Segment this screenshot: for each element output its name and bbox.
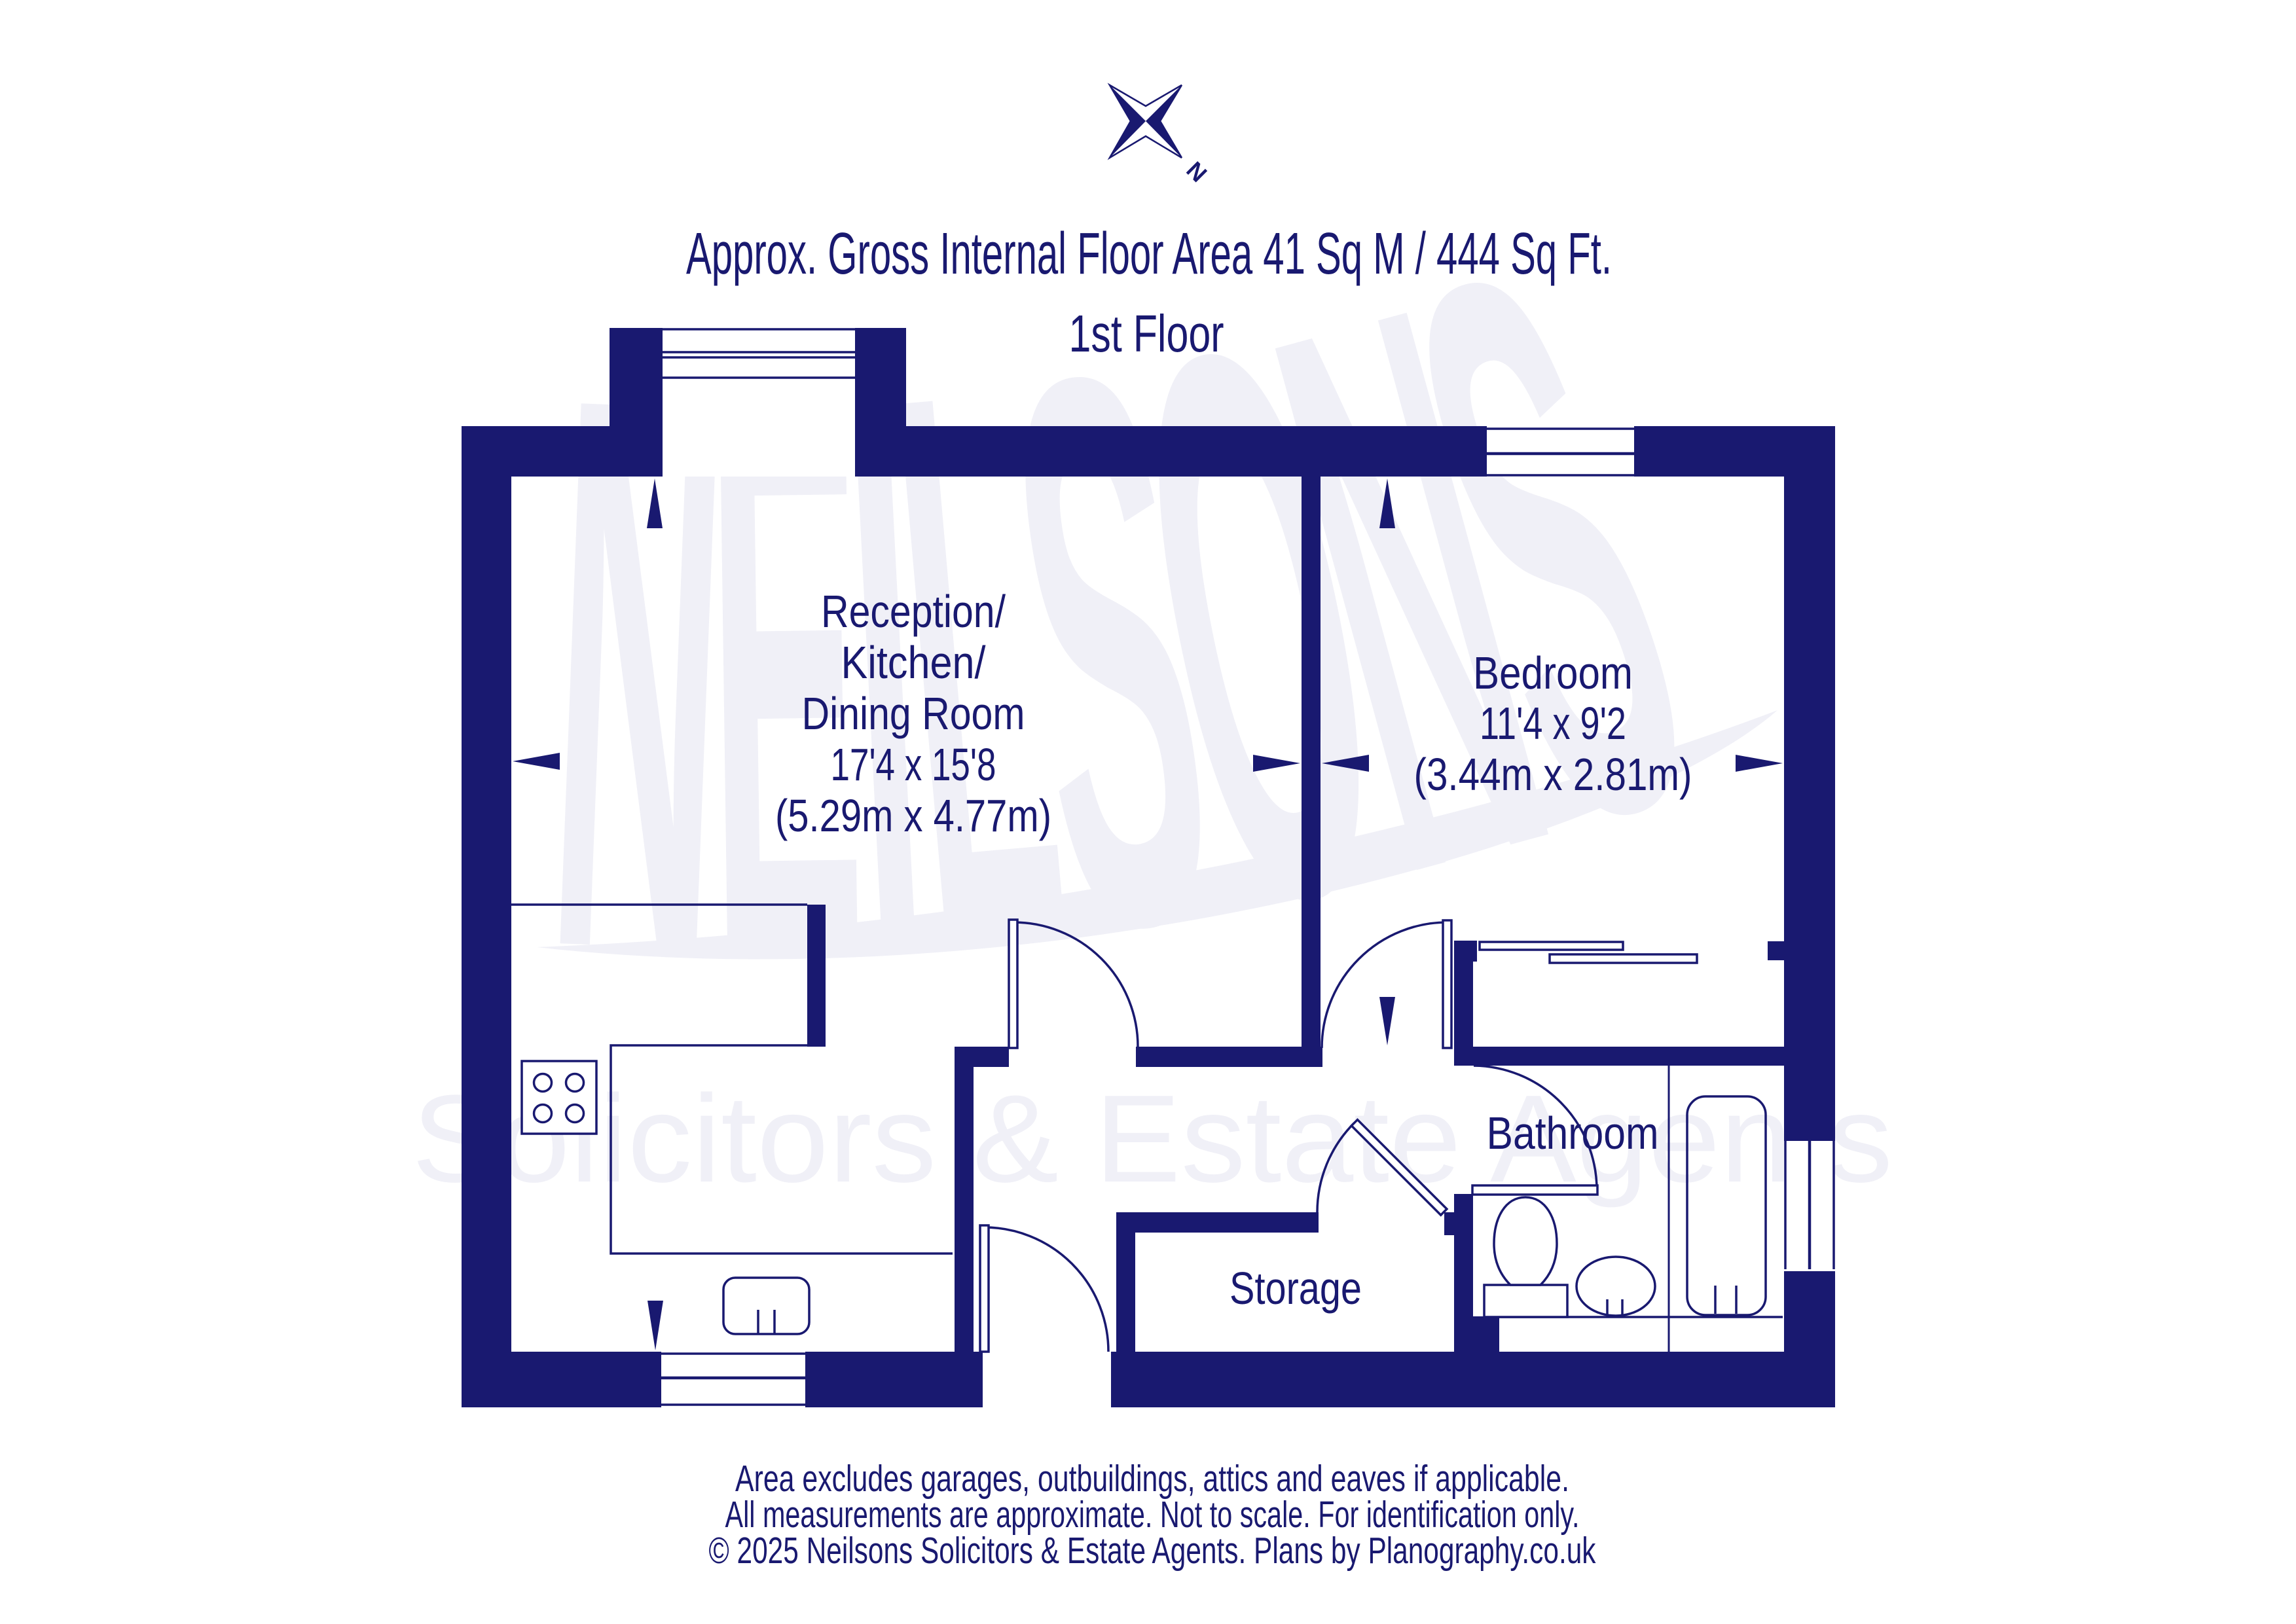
svg-text:Storage: Storage <box>1230 1263 1362 1314</box>
svg-text:© 2025 Neilsons Solicitors & E: © 2025 Neilsons Solicitors & Estate Agen… <box>709 1530 1596 1572</box>
svg-text:Approx. Gross Internal Floor A: Approx. Gross Internal Floor Area 41 Sq … <box>686 221 1612 287</box>
svg-text:(5.29m x 4.77m): (5.29m x 4.77m) <box>775 790 1051 841</box>
svg-text:Bathroom: Bathroom <box>1487 1108 1659 1159</box>
svg-text:17'4 x 15'8: 17'4 x 15'8 <box>831 739 996 790</box>
svg-text:Solicitors & Estate Agents: Solicitors & Estate Agents <box>412 1070 1893 1208</box>
svg-text:Bedroom: Bedroom <box>1473 647 1633 698</box>
svg-text:11'4 x 9'2: 11'4 x 9'2 <box>1480 698 1626 749</box>
svg-text:1st Floor: 1st Floor <box>1069 304 1224 363</box>
svg-text:Reception/: Reception/ <box>821 586 1006 637</box>
svg-text:(3.44m x 2.81m): (3.44m x 2.81m) <box>1414 749 1692 800</box>
svg-text:Dining Room: Dining Room <box>802 688 1025 739</box>
svg-text:Kitchen/: Kitchen/ <box>841 637 986 688</box>
